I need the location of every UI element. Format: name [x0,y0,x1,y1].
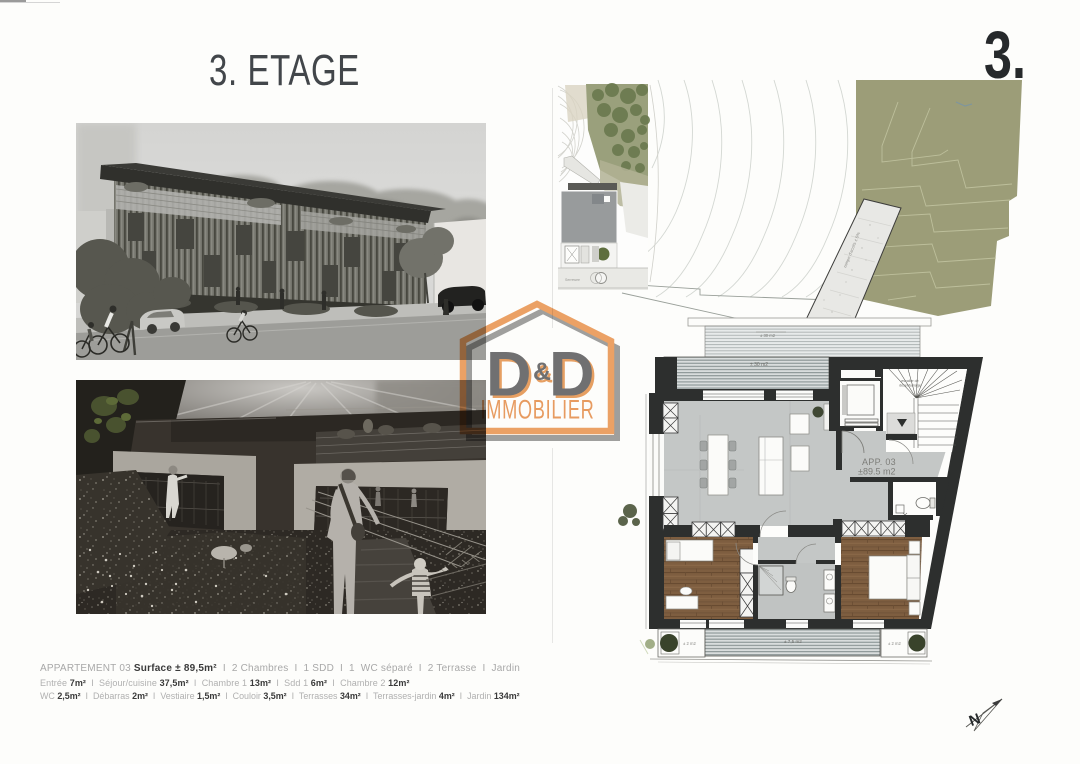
svg-text:± 30 m2: ± 30 m2 [750,362,768,368]
svg-text:± 2 m2: ± 2 m2 [888,641,901,646]
svg-text:±89.5 m2: ±89.5 m2 [858,467,895,477]
svg-text:N: N [967,710,983,730]
svg-text:APP. 03: APP. 03 [862,457,896,467]
svg-text:désenfumage: désenfumage [899,384,921,388]
svg-text:± 30 m2: ± 30 m2 [760,333,776,338]
svg-text:± 7,5 m2: ± 7,5 m2 [784,639,802,644]
svg-text:Serrewee: Serrewee [565,278,580,282]
svg-text:escalier de: escalier de [901,379,918,383]
svg-text:± 2 m2: ± 2 m2 [683,641,696,646]
